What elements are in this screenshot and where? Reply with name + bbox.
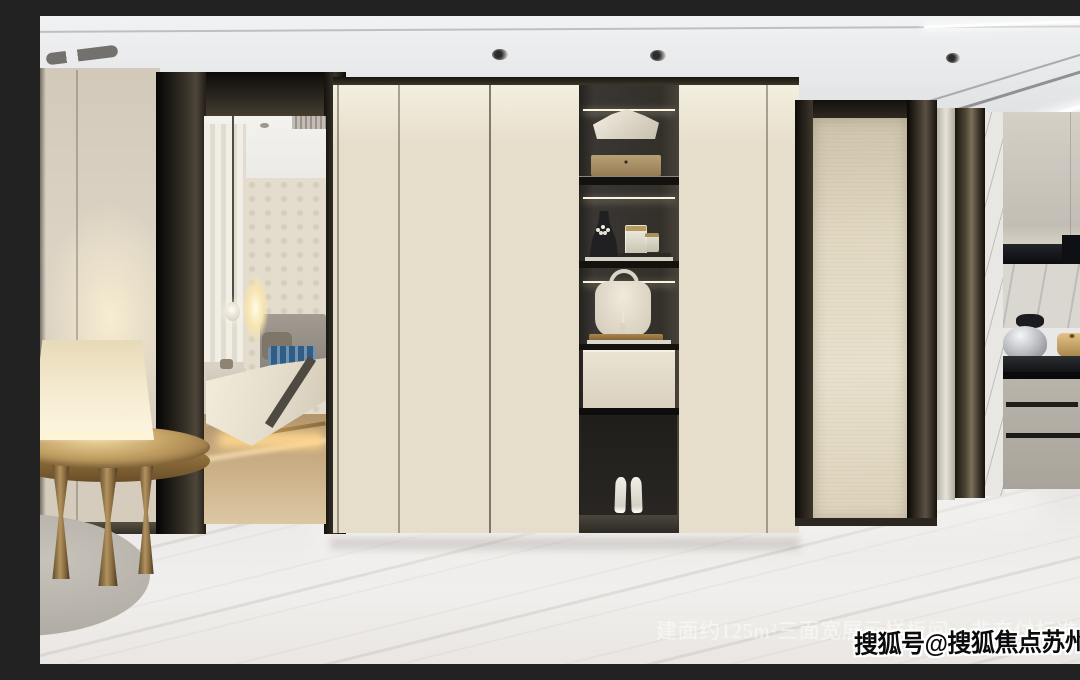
bedroom-ac-vent [292,116,326,129]
column-light-strip [937,108,955,500]
wardrobe-seam-2 [398,85,400,533]
shelf-tray-top-2 [585,257,673,261]
item-heel-left [614,477,626,513]
wardrobe-seam-3 [489,85,491,533]
pendant-cord [232,116,234,304]
ceiling-spotlight-2 [650,50,666,61]
table-lamp-shade [40,340,154,440]
shelf-led-2 [583,197,675,199]
ceiling-spotlight-1 [492,49,508,60]
item-pearl-necklace [601,225,605,229]
right-door-panel [813,118,907,520]
shelf-drawer [583,350,675,410]
shelf-tray-top-3 [587,340,671,344]
item-box-2 [591,155,661,176]
kitchen-handle-1 [1006,402,1078,407]
item-perfume-large [625,225,647,254]
wardrobe-plinth [331,530,801,540]
shelf-board-1 [579,176,679,185]
column-bronze [955,108,985,498]
wardrobe-body [333,85,799,533]
pendant-lamp [225,302,240,321]
kitchen-pot-steel [1003,326,1047,360]
shelf-unit [579,85,679,533]
bedroom-spotlight [260,123,269,128]
shelf-board-4 [579,408,679,415]
item-folded-garment [593,109,659,139]
wardrobe-seam-1 [337,85,339,533]
right-door-jamb-left [795,100,813,524]
nightstand-decor [220,359,233,369]
right-door-threshold [795,518,937,526]
item-perfume-small [645,233,659,252]
bedroom-view [204,116,326,524]
item-heel-right [630,477,642,513]
wardrobe-top-trim [333,77,799,85]
kitchen-handle-2 [1006,433,1080,438]
shelf-board-2 [579,261,679,268]
item-box-1 [597,137,657,155]
column-marble [985,112,1005,496]
interior-photo: 建面约125m²三面宽展示样板间，非交付标准 搜狐号@搜狐焦点苏州站 [40,16,1080,664]
kitchen-counter-edge [1003,372,1080,379]
item-handbag-tassel-end [619,323,626,334]
ceiling-spotlight-3 [946,53,960,63]
kitchen-hood-box [1062,235,1080,264]
wardrobe-top-lightwash [333,85,799,145]
watermark-badge: 搜狐号@搜狐焦点苏州站 [854,621,1080,660]
bedroom-curtain [204,124,246,362]
wardrobe-seam-4 [766,85,768,533]
item-necklace-bust [589,211,619,261]
kitchen-pot-gold-1 [1057,333,1080,357]
kitchen-upper-cabinets [1003,112,1080,246]
table-lamp-glow [40,432,150,438]
right-door-jamb-right [907,100,937,524]
item-handbag-tassel [622,299,624,325]
